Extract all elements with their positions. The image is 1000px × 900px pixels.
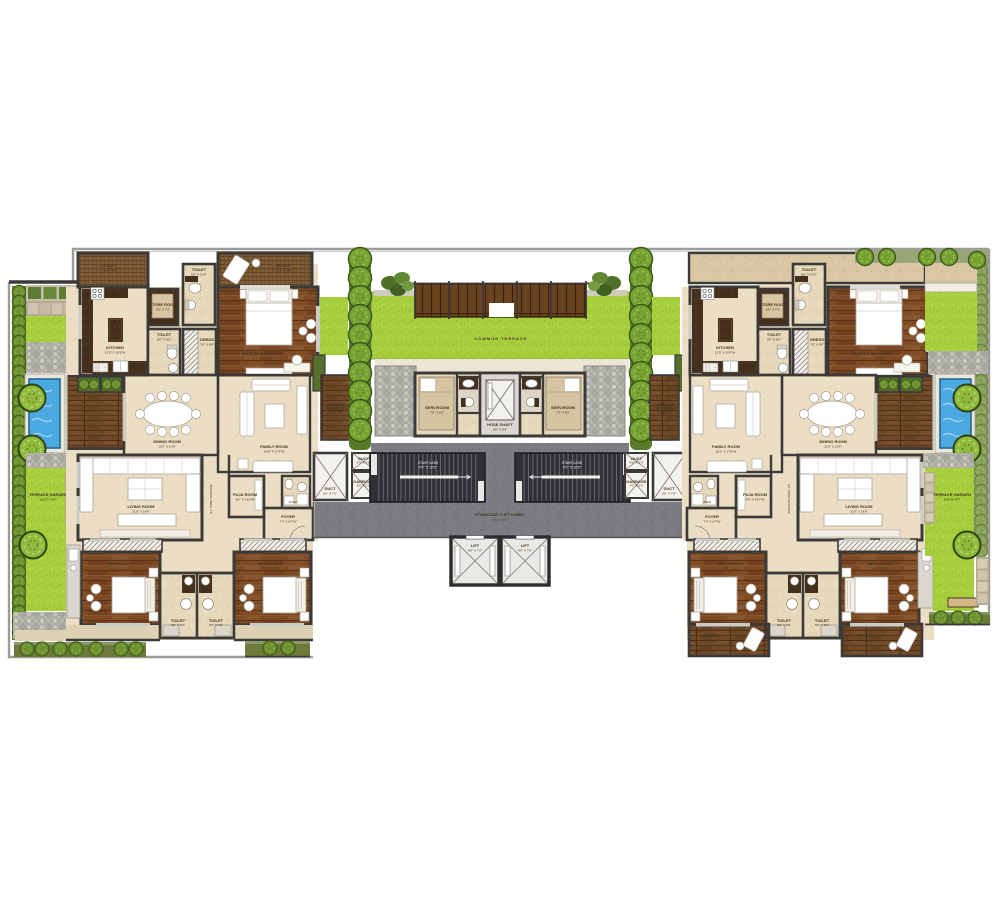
svg-text:9'0" X 19'2": 9'0" X 19'2" <box>419 466 438 470</box>
svg-text:8'0" X 4'10"W: 8'0" X 4'10"W <box>236 498 255 502</box>
svg-text:16'0" X 17'0"W: 16'0" X 17'0"W <box>716 450 736 454</box>
svg-text:8'0" X 2'0": 8'0" X 2'0" <box>629 461 643 465</box>
svg-text:FOYER: FOYER <box>281 514 295 519</box>
svg-text:FAMILY ROOM: FAMILY ROOM <box>712 444 740 449</box>
svg-text:COMMON TERRACE: COMMON TERRACE <box>474 336 527 341</box>
svg-text:21'9" X 14'9": 21'9" X 14'9" <box>850 510 867 514</box>
svg-text:7'2" X 6'5": 7'2" X 6'5" <box>705 639 719 643</box>
svg-text:12'0" X 10'6": 12'0" X 10'6" <box>824 445 841 449</box>
svg-text:7'4" X 6'5"W: 7'4" X 6'5"W <box>704 520 721 524</box>
svg-text:9'0" X 19'2": 9'0" X 19'2" <box>563 466 582 470</box>
svg-text:16'0" X 17'0"W: 16'0" X 17'0"W <box>264 450 284 454</box>
svg-text:SITOUT: SITOUT <box>277 263 292 268</box>
svg-text:DUCT: DUCT <box>324 486 336 491</box>
svg-text:14'0" X 16'0": 14'0" X 16'0" <box>111 567 128 571</box>
svg-text:14'0" X 16'0": 14'0" X 16'0" <box>261 567 278 571</box>
svg-text:SITOUT: SITOUT <box>858 633 873 638</box>
svg-text:9'1" WIDE PASSAGE: 9'1" WIDE PASSAGE <box>787 484 791 513</box>
svg-text:TOILET: TOILET <box>802 267 817 272</box>
svg-text:LIFT: LIFT <box>471 543 480 548</box>
svg-text:DUCT: DUCT <box>663 486 675 491</box>
svg-text:7'0" X 8'0": 7'0" X 8'0" <box>200 343 214 347</box>
svg-text:TERRACE GARDEN: TERRACE GARDEN <box>29 492 67 497</box>
svg-text:4'0" X 5'0": 4'0" X 5'0" <box>356 484 370 488</box>
svg-text:FAMILY ROOM: FAMILY ROOM <box>260 444 288 449</box>
svg-text:SITOUT: SITOUT <box>705 633 720 638</box>
svg-text:21'9" X 14'9": 21'9" X 14'9" <box>132 510 149 514</box>
svg-text:11'2" X 8'0": 11'2" X 8'0" <box>276 269 292 273</box>
svg-text:8'0" X 9'0": 8'0" X 9'0" <box>493 427 507 431</box>
svg-text:27'0" X 8'0": 27'0" X 8'0" <box>492 518 508 522</box>
svg-text:UTILITY: UTILITY <box>102 263 117 268</box>
svg-text:5'6" X 7'0": 5'6" X 7'0" <box>156 308 170 312</box>
svg-text:HOSE SHAFT: HOSE SHAFT <box>487 422 513 427</box>
svg-text:8'0" X 7'0": 8'0" X 7'0" <box>518 548 532 552</box>
svg-text:DRESS: DRESS <box>200 337 214 342</box>
svg-text:5'0" X 8'0": 5'0" X 8'0" <box>767 338 781 342</box>
svg-text:6'0" X 12'0": 6'0" X 12'0" <box>801 273 817 277</box>
svg-text:5'0" X 8'0": 5'0" X 8'0" <box>209 623 223 627</box>
svg-text:17'0" X 16'0"W: 17'0" X 16'0"W <box>252 357 272 361</box>
svg-text:5'0" X 8'0": 5'0" X 8'0" <box>171 623 185 627</box>
svg-text:KITCHEN: KITCHEN <box>716 345 734 350</box>
svg-text:17'0" X 16'0"W: 17'0" X 16'0"W <box>862 357 882 361</box>
svg-text:TOILET: TOILET <box>767 332 782 337</box>
svg-text:4'0" X 5'0": 4'0" X 5'0" <box>629 484 643 488</box>
svg-text:LIFT: LIFT <box>521 543 530 548</box>
svg-text:8'0" X 4'10"W: 8'0" X 4'10"W <box>746 498 765 502</box>
svg-text:TOILET: TOILET <box>192 267 207 272</box>
svg-text:5'0" X 8'0": 5'0" X 8'0" <box>815 623 829 627</box>
svg-text:SERV.ROOM: SERV.ROOM <box>425 405 450 410</box>
svg-text:5'6" X 7'0": 5'6" X 7'0" <box>766 308 780 312</box>
svg-text:DRESS: DRESS <box>810 337 824 342</box>
svg-text:8'0" X 7'0": 8'0" X 7'0" <box>662 492 676 496</box>
svg-text:12'0" X 10'9"W: 12'0" X 10'9"W <box>715 351 735 355</box>
svg-text:PUJA ROOM: PUJA ROOM <box>233 492 258 497</box>
svg-text:TOILET: TOILET <box>157 332 172 337</box>
svg-text:5'0" X 8'0": 5'0" X 8'0" <box>777 623 791 627</box>
svg-text:9'1" WIDE PASSAGE: 9'1" WIDE PASSAGE <box>209 484 213 513</box>
svg-text:8'0" X 2'0": 8'0" X 2'0" <box>356 461 370 465</box>
svg-text:12'0" X 10'6": 12'0" X 10'6" <box>158 445 175 449</box>
svg-text:7'0" X 8'0": 7'0" X 8'0" <box>810 343 824 347</box>
svg-text:7'0" X 8'0": 7'0" X 8'0" <box>430 411 444 415</box>
svg-text:1115.72 SFT: 1115.72 SFT <box>39 498 57 502</box>
svg-text:DINING ROOM: DINING ROOM <box>153 439 181 444</box>
svg-text:256.38 SFT: 256.38 SFT <box>656 410 672 414</box>
svg-text:TERRACE GARDEN: TERRACE GARDEN <box>933 492 971 497</box>
svg-text:10'0" X 5'0": 10'0" X 5'0" <box>102 269 118 273</box>
svg-text:256.38 SFT: 256.38 SFT <box>327 410 343 414</box>
svg-text:STAIR CASE: STAIR CASE <box>418 461 439 465</box>
svg-text:8'0" X 7'0": 8'0" X 7'0" <box>468 548 482 552</box>
svg-text:DINING ROOM: DINING ROOM <box>819 439 847 444</box>
svg-text:BEDROOM 3: BEDROOM 3 <box>868 561 893 566</box>
svg-text:12'0" X 10'9"W: 12'0" X 10'9"W <box>105 351 125 355</box>
svg-text:14'0" X 16'0": 14'0" X 16'0" <box>871 567 888 571</box>
svg-text:KITCHEN: KITCHEN <box>106 345 124 350</box>
svg-text:14'0" X 16'0": 14'0" X 16'0" <box>722 567 739 571</box>
svg-text:STAIR CASE: STAIR CASE <box>562 461 583 465</box>
svg-text:7'0" X 8'0": 7'0" X 8'0" <box>556 411 570 415</box>
svg-text:PUJA ROOM: PUJA ROOM <box>743 492 768 497</box>
svg-text:6'0" X 12'0": 6'0" X 12'0" <box>191 273 207 277</box>
svg-text:FOYER: FOYER <box>705 514 719 519</box>
svg-text:LIVING ROOM: LIVING ROOM <box>128 504 156 509</box>
svg-text:BEDROOM 2: BEDROOM 2 <box>719 561 744 566</box>
svg-text:5'0" X 8'0": 5'0" X 8'0" <box>157 338 171 342</box>
svg-text:7'4" X 6'5"W: 7'4" X 6'5"W <box>280 520 297 524</box>
svg-text:BEDROOM 2: BEDROOM 2 <box>258 561 283 566</box>
svg-text:7'2" X 6'5": 7'2" X 6'5" <box>858 639 872 643</box>
svg-text:SERV.ROOM: SERV.ROOM <box>551 405 576 410</box>
svg-text:BEDROOM 3: BEDROOM 3 <box>108 561 133 566</box>
svg-text:STORE ROOM: STORE ROOM <box>149 302 177 307</box>
svg-text:904.98 SFT: 904.98 SFT <box>944 498 960 502</box>
svg-text:LIVING ROOM: LIVING ROOM <box>846 504 874 509</box>
svg-text:STAIRCASE / LIFT LOBBY: STAIRCASE / LIFT LOBBY <box>475 512 525 517</box>
svg-text:STORE ROOM: STORE ROOM <box>759 302 787 307</box>
svg-text:MASTER BEDROOM: MASTER BEDROOM <box>853 351 893 356</box>
svg-text:8'0" X 7'0": 8'0" X 7'0" <box>323 492 337 496</box>
svg-text:MASTER BEDROOM: MASTER BEDROOM <box>243 351 283 356</box>
